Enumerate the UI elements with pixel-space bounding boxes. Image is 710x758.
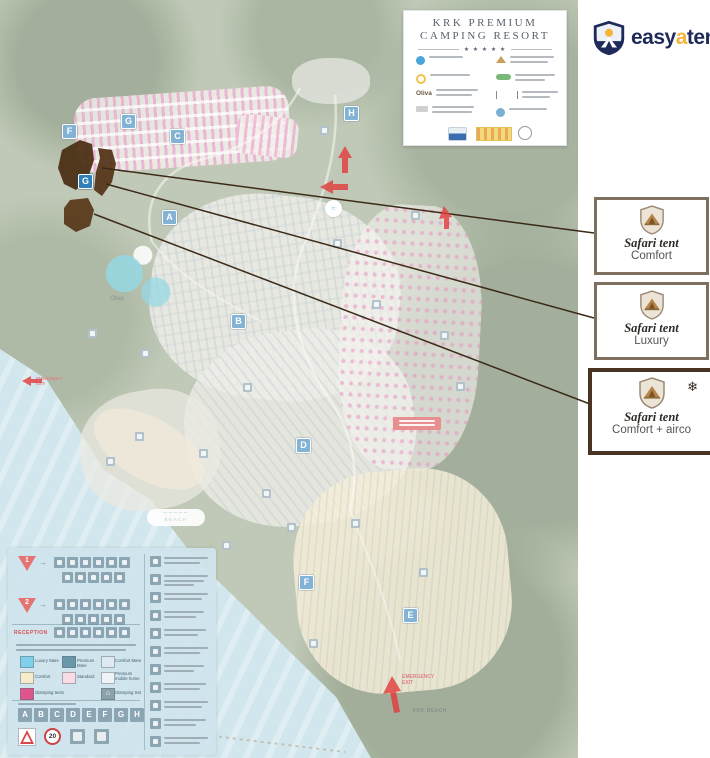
legend-icon bbox=[54, 599, 65, 610]
info-row bbox=[496, 91, 558, 100]
legend-icon bbox=[106, 557, 117, 568]
legend-icon bbox=[106, 599, 117, 610]
legend-icon bbox=[93, 599, 104, 610]
legend-divider bbox=[144, 554, 145, 750]
oliva-logo: Oliva bbox=[416, 89, 432, 98]
legend-right-row bbox=[150, 628, 206, 639]
zone-swatch bbox=[101, 656, 115, 668]
reception-label: RECEPTION bbox=[14, 630, 48, 636]
legend-icon bbox=[119, 599, 130, 610]
info-row bbox=[416, 106, 474, 115]
resort-info-card: KRK PREMIUM CAMPING RESORT ★ ★ ★ ★ ★ Oli… bbox=[403, 10, 567, 146]
legend-icon bbox=[67, 627, 78, 638]
safari-tent-comfort-box[interactable]: Safari tent Comfort bbox=[594, 197, 709, 275]
legend-icon bbox=[80, 557, 91, 568]
legend-right-row bbox=[150, 610, 204, 621]
legend-icon bbox=[150, 646, 161, 657]
legend-icon bbox=[93, 557, 104, 568]
tent-icon bbox=[496, 56, 506, 63]
legend-right-row bbox=[150, 574, 208, 589]
reception-icon-row bbox=[54, 627, 130, 638]
entrance-marker-1: 1 bbox=[18, 556, 36, 571]
entrance-marker-2: 2 bbox=[18, 598, 36, 613]
legend-icon bbox=[54, 557, 65, 568]
legend-icon bbox=[150, 610, 161, 621]
safari-tent-comfort-airco-box[interactable]: ❄ Safari tent Comfort + airco bbox=[588, 368, 710, 455]
info-row bbox=[496, 56, 554, 65]
legend-icon-row bbox=[54, 599, 130, 610]
partner-logo bbox=[496, 91, 518, 99]
legend-caption-line bbox=[18, 703, 76, 705]
legend-divider bbox=[12, 624, 140, 625]
legend-icon bbox=[150, 574, 161, 585]
speed-limit-sign: 20 bbox=[44, 728, 61, 745]
info-icon bbox=[416, 74, 426, 84]
legend-note-line bbox=[16, 644, 136, 646]
legend-icon-row bbox=[54, 557, 130, 568]
easyatent-logo[interactable]: easyatent bbox=[590, 18, 710, 58]
legend-note-line bbox=[16, 649, 126, 651]
legend-icon bbox=[150, 664, 161, 675]
safari-tent-icon bbox=[639, 205, 665, 235]
legend-icon bbox=[88, 572, 99, 583]
safari-tent-icon bbox=[639, 290, 665, 320]
legend-icon bbox=[67, 557, 78, 568]
zone-swatch bbox=[20, 672, 34, 684]
map-legend-panel: 1 2 RECEPTION Luxury Mare Premium Mare C… bbox=[8, 548, 216, 755]
tent-box-title: Safari tent bbox=[624, 322, 679, 335]
info-sign bbox=[94, 729, 109, 744]
snowflake-icon: ❄ bbox=[687, 379, 698, 395]
legend-right-row bbox=[150, 664, 204, 675]
zone-swatch bbox=[62, 656, 76, 668]
legend-right-row bbox=[150, 718, 206, 729]
tent-box-subtitle: Luxury bbox=[634, 335, 669, 348]
legend-icon bbox=[75, 572, 86, 583]
flag-badge bbox=[448, 127, 467, 141]
legend-icon bbox=[150, 628, 161, 639]
camping-resort-flyer: F G C H A B D E F ~~~~~ BEACH Oliva bbox=[0, 0, 710, 758]
legend-icon bbox=[54, 627, 65, 638]
legend-icon bbox=[150, 592, 161, 603]
award-badge bbox=[476, 127, 512, 141]
legend-icon bbox=[62, 572, 73, 583]
safari-tent-icon bbox=[638, 377, 666, 409]
legend-icon bbox=[150, 682, 161, 693]
zone-badge: G bbox=[78, 174, 93, 189]
legend-icon bbox=[150, 556, 161, 567]
tent-box-subtitle: Comfort + airco bbox=[612, 424, 691, 437]
legend-icon bbox=[80, 599, 91, 610]
resort-title-line1: KRK PREMIUM bbox=[404, 17, 566, 30]
legend-icon bbox=[106, 627, 117, 638]
arrow-icon bbox=[39, 601, 47, 609]
arrow-icon bbox=[39, 559, 47, 567]
star-rating: ★ ★ ★ ★ ★ bbox=[418, 46, 552, 53]
round-badge bbox=[518, 126, 532, 140]
legend-icon-row bbox=[62, 572, 125, 583]
resort-title-line2: CAMPING RESORT bbox=[404, 30, 566, 43]
legend-right-row bbox=[150, 592, 208, 603]
info-row bbox=[416, 74, 470, 84]
legend-icon bbox=[150, 718, 161, 729]
legend-icon bbox=[119, 557, 130, 568]
legend-right-row bbox=[150, 736, 208, 747]
zone-letter-index: A B C D E F G H bbox=[18, 708, 144, 722]
legend-icon bbox=[114, 572, 125, 583]
info-icon bbox=[416, 56, 425, 65]
legend-right-row bbox=[150, 682, 206, 693]
glamping-set-house-icon: ⌂ bbox=[101, 688, 115, 700]
legend-icon bbox=[101, 572, 112, 583]
tent-box-subtitle: Comfort bbox=[631, 250, 672, 263]
info-row: Oliva bbox=[416, 89, 478, 98]
info-row bbox=[416, 56, 463, 65]
easyatent-wordmark: easyatent bbox=[631, 26, 710, 50]
safari-tent-luxury-box[interactable]: Safari tent Luxury bbox=[594, 282, 709, 360]
info-row bbox=[496, 74, 555, 83]
info-icon bbox=[416, 106, 428, 112]
info-sign bbox=[70, 729, 85, 744]
legend-icon bbox=[67, 599, 78, 610]
legend-icon bbox=[150, 700, 161, 711]
zone-swatch bbox=[20, 656, 34, 668]
info-icon bbox=[496, 108, 505, 117]
legend-right-row bbox=[150, 646, 208, 657]
zone-swatch bbox=[101, 672, 115, 684]
legend-right-row bbox=[150, 556, 208, 567]
legend-icon bbox=[93, 627, 104, 638]
info-icon bbox=[496, 74, 511, 80]
legend-icon bbox=[119, 627, 130, 638]
zone-swatch bbox=[62, 672, 76, 684]
easyatent-shield-icon bbox=[590, 18, 628, 58]
tent-box-title: Safari tent bbox=[624, 411, 679, 424]
warning-sign bbox=[18, 728, 36, 746]
legend-right-row bbox=[150, 700, 208, 711]
info-row bbox=[496, 108, 547, 117]
zone-swatch bbox=[20, 688, 34, 700]
legend-icon bbox=[150, 736, 161, 747]
tent-box-title: Safari tent bbox=[624, 237, 679, 250]
legend-icon bbox=[80, 627, 91, 638]
legend-divider bbox=[12, 700, 140, 701]
